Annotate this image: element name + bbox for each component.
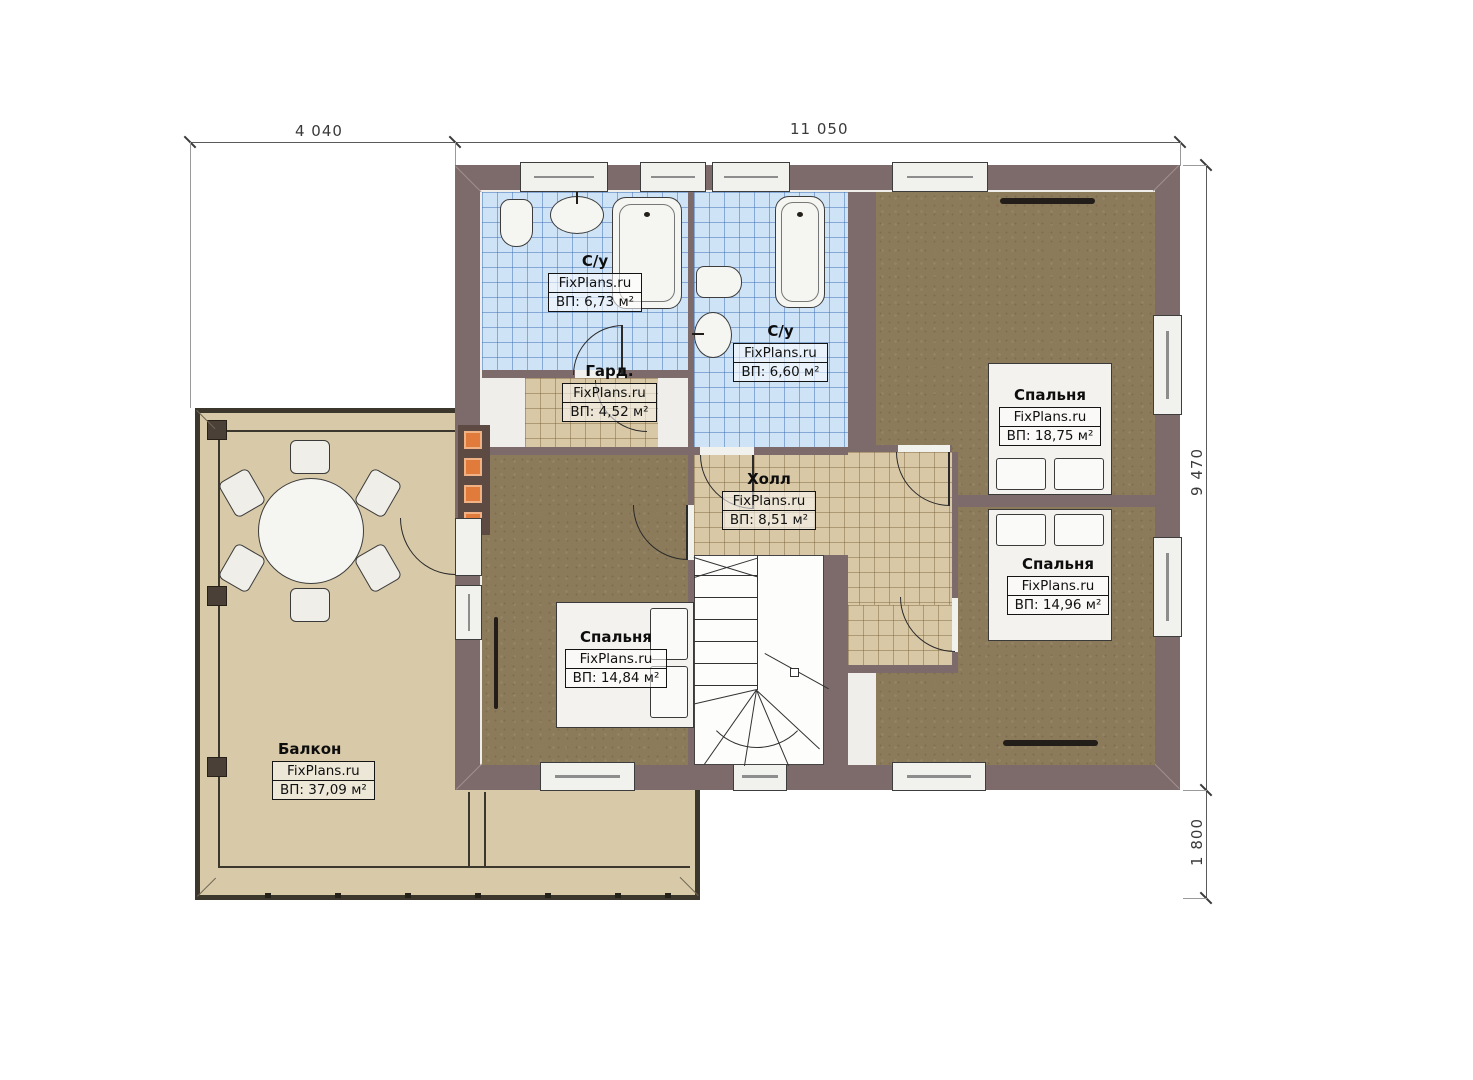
balcony-stud: [615, 893, 621, 898]
door-opening: [898, 445, 950, 452]
room-info-box: FixPlans.ru ВП: 4,52 м²: [562, 383, 656, 422]
chair: [290, 588, 330, 622]
room-name: С/у: [767, 322, 793, 340]
chair: [290, 440, 330, 474]
room-area: ВП: 14,84 м²: [566, 669, 667, 687]
window: [520, 162, 608, 192]
window: [892, 162, 988, 192]
room-area: ВП: 4,52 м²: [563, 403, 655, 421]
stair-tread: [694, 619, 757, 620]
room-area: ВП: 6,60 м²: [734, 363, 826, 381]
tv-console: [494, 617, 498, 709]
room-area: ВП: 18,75 м²: [1000, 427, 1101, 445]
room-name: Гард.: [585, 362, 633, 380]
balcony-rail: [218, 430, 220, 868]
dim-right-balcony: 1 800: [1188, 818, 1206, 866]
toilet: [500, 199, 533, 247]
tv-console: [1000, 198, 1095, 204]
stair-arc: [699, 632, 815, 748]
window: [892, 762, 986, 791]
balcony-window: [455, 585, 482, 640]
floor-plan: 4 040 11 050 9 470 1 800: [0, 0, 1473, 1080]
window: [1153, 537, 1182, 637]
watermark: FixPlans.ru: [1008, 577, 1109, 596]
door-opening: [688, 505, 694, 560]
window: [712, 162, 790, 192]
room-area: ВП: 14,96 м²: [1008, 596, 1109, 614]
balcony-stud: [405, 893, 411, 898]
dim-top-left: 4 040: [295, 122, 343, 140]
dim-right-main: 9 470: [1188, 448, 1206, 496]
watermark: FixPlans.ru: [1000, 408, 1101, 427]
wall: [952, 495, 1155, 507]
window: [540, 762, 635, 791]
room-name: Спальня: [1022, 555, 1094, 573]
flue: [464, 431, 482, 449]
room-area: ВП: 37,09 м²: [273, 781, 374, 799]
tv-console: [1003, 740, 1098, 746]
balcony-rail: [468, 792, 470, 868]
room-name: Спальня: [580, 628, 652, 646]
room-name: С/у: [582, 252, 608, 270]
balcony-rail: [484, 792, 486, 868]
stair-post: [790, 668, 799, 677]
door-leaf: [948, 452, 950, 506]
watermark: FixPlans.ru: [723, 492, 815, 511]
balcony-stud: [665, 893, 671, 898]
door-opening: [700, 447, 754, 455]
room-info-box: FixPlans.ru ВП: 6,73 м²: [548, 273, 642, 312]
balcony-post: [207, 586, 227, 606]
room-label-balcony: Балкон FixPlans.ru ВП: 37,09 м²: [272, 740, 384, 800]
window: [1153, 315, 1182, 415]
wall: [848, 192, 876, 452]
wall: [848, 665, 952, 673]
wall: [824, 555, 848, 765]
watermark: FixPlans.ru: [566, 650, 667, 669]
flue: [464, 458, 482, 476]
room-name: Холл: [747, 470, 791, 488]
dim-line-top: [190, 142, 1180, 143]
ext-line: [1180, 142, 1181, 166]
bathtub-inner: [781, 202, 819, 302]
balcony-stud: [335, 893, 341, 898]
stair-tread: [694, 597, 757, 598]
dim-top-right: 11 050: [790, 120, 849, 138]
ext-line: [1183, 898, 1207, 899]
wall: [688, 192, 694, 455]
watermark: FixPlans.ru: [734, 344, 826, 363]
flue: [464, 485, 482, 503]
room-area: ВП: 8,51 м²: [723, 511, 815, 529]
window: [640, 162, 706, 192]
room-label-hall: Холл FixPlans.ru ВП: 8,51 м²: [713, 470, 825, 530]
balcony-post: [207, 757, 227, 777]
room-info-box: FixPlans.ru ВП: 14,84 м²: [565, 649, 668, 688]
room-info-box: FixPlans.ru ВП: 37,09 м²: [272, 761, 375, 800]
ext-line: [1183, 790, 1207, 791]
bathtub-drain: [797, 212, 803, 217]
room-label-bedroom-bottom-right: Спальня FixPlans.ru ВП: 14,96 м²: [1003, 555, 1113, 615]
wall: [482, 447, 688, 455]
balcony-stud: [265, 893, 271, 898]
room-label-bathroom-2: С/у FixPlans.ru ВП: 6,60 м²: [723, 322, 838, 382]
sink-tap: [576, 192, 578, 204]
watermark: FixPlans.ru: [273, 762, 374, 781]
ext-line: [1183, 165, 1207, 166]
room-name: Балкон: [278, 740, 341, 758]
pillow: [1054, 514, 1104, 546]
ext-line: [190, 142, 191, 408]
room-label-bedroom-top-right: Спальня FixPlans.ru ВП: 18,75 м²: [993, 386, 1107, 446]
ext-line: [455, 142, 456, 166]
pillow: [996, 458, 1046, 490]
balcony-stud: [545, 893, 551, 898]
room-name: Спальня: [1014, 386, 1086, 404]
watermark: FixPlans.ru: [563, 384, 655, 403]
round-table: [258, 478, 364, 584]
room-info-box: FixPlans.ru ВП: 14,96 м²: [1007, 576, 1110, 615]
door-opening: [455, 518, 482, 576]
watermark: FixPlans.ru: [549, 274, 641, 293]
pillow: [996, 514, 1046, 546]
room-label-bathroom-1: С/у FixPlans.ru ВП: 6,73 м²: [535, 252, 655, 312]
room-info-box: FixPlans.ru ВП: 8,51 м²: [722, 491, 816, 530]
room-info-box: FixPlans.ru ВП: 6,60 м²: [733, 343, 827, 382]
room-area: ВП: 6,73 м²: [549, 293, 641, 311]
window: [733, 762, 787, 791]
sink-tap: [692, 333, 704, 335]
balcony-rail: [218, 430, 456, 432]
balcony-stud: [475, 893, 481, 898]
door-leaf: [686, 505, 688, 560]
bathtub-drain: [644, 212, 650, 217]
toilet: [696, 266, 742, 298]
room-label-bedroom-left: Спальня FixPlans.ru ВП: 14,84 м²: [560, 628, 672, 688]
pillow: [1054, 458, 1104, 490]
balcony-rail: [218, 866, 690, 868]
room-info-box: FixPlans.ru ВП: 18,75 м²: [999, 407, 1102, 446]
room-label-wardrobe: Гард. FixPlans.ru ВП: 4,52 м²: [552, 362, 667, 422]
